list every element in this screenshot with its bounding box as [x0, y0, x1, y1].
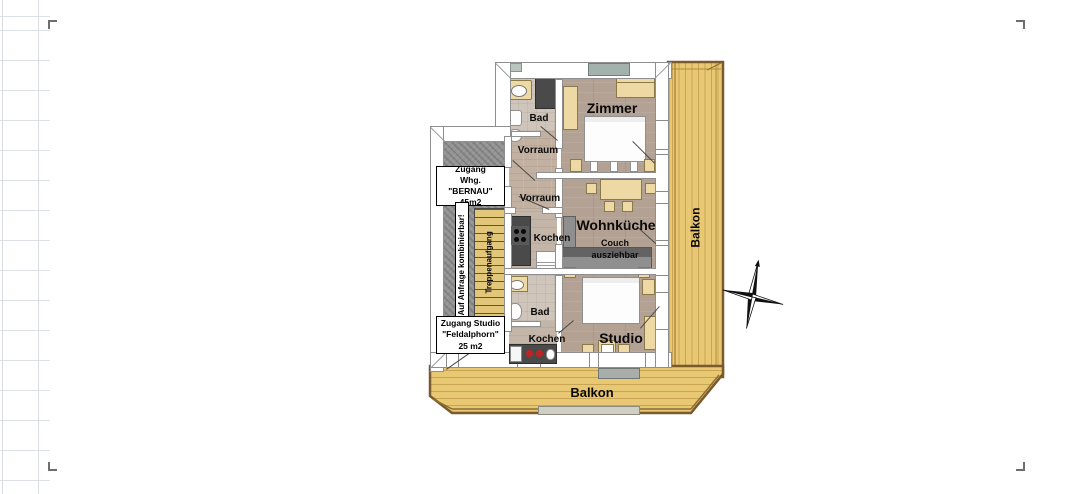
label-studio: Studio	[581, 331, 661, 346]
balcony-door-wohnkueche	[656, 245, 668, 276]
feldalphorn-line1: Zugang Studio	[437, 318, 504, 329]
floorplan-page: { "plan": { "labels": { "bad_top": "Bad"…	[0, 0, 1070, 494]
sink-kochen-bottom-icon	[546, 349, 555, 360]
label-bad-bottom: Bad	[520, 307, 560, 318]
sink-basin-bottom-icon	[510, 280, 524, 290]
fridge-bottom-icon	[510, 346, 522, 362]
label-treppenaufgang: Treppenaufgang	[486, 207, 495, 317]
bedpost-1	[590, 161, 598, 172]
label-box-bernau: Zugang Whg. "BERNAU" 45m2	[436, 166, 505, 206]
crop-mark-bottom-left	[48, 462, 57, 471]
bernau-line2: Whg. "BERNAU"	[437, 175, 504, 197]
label-bad-top: Bad	[519, 113, 559, 124]
label-zimmer: Zimmer	[572, 101, 652, 116]
sink-basin-icon	[511, 85, 527, 97]
feldalphorn-line2: "Feldalphorn"	[437, 329, 504, 340]
shower-top-bad	[535, 77, 557, 109]
chair-4	[622, 201, 633, 212]
label-box-kombinierbar: Auf Anfrage kombinierbar!	[455, 202, 469, 328]
wall-bad-top	[511, 131, 541, 137]
label-couch-line2: ausziehbar	[580, 251, 650, 261]
wall-left-upper	[495, 62, 511, 136]
label-kochen-top: Kochen	[522, 233, 582, 244]
bed-studio	[582, 277, 640, 324]
crop-mark-top-left	[48, 20, 57, 29]
wall-zimmer-wohnkueche	[536, 172, 668, 179]
nightstand-studio	[642, 279, 655, 295]
bed-zimmer	[584, 116, 646, 162]
crop-mark-bottom-right	[1016, 462, 1025, 471]
bernau-line1: Zugang	[437, 164, 504, 175]
label-vorraum-mid: Vorraum	[510, 193, 570, 204]
bedpost-2	[610, 161, 618, 172]
bedpost-3	[630, 161, 638, 172]
kombinierbar-text: Auf Anfrage kombinierbar!	[457, 203, 467, 327]
wall-bad-studio	[555, 275, 563, 332]
burner-red-2	[536, 350, 543, 357]
nightstand-left	[570, 159, 582, 172]
chair-1	[586, 183, 597, 194]
balcony-planter	[598, 368, 640, 379]
feldalphorn-line3: 25 m2	[437, 341, 504, 352]
window-top	[588, 63, 630, 76]
label-wohnkueche: Wohnküche	[566, 218, 666, 233]
window-bottom-3	[598, 353, 646, 367]
label-balkon-bottom: Balkon	[558, 386, 626, 400]
label-box-feldalphorn: Zugang Studio "Feldalphorn" 25 m2	[436, 316, 505, 354]
chair-3	[604, 201, 615, 212]
crop-mark-top-right	[1016, 20, 1025, 29]
label-couch-line1: Couch	[585, 239, 645, 249]
balcony-door-zimmer	[656, 154, 668, 192]
wall-bad-kochen-bottom	[511, 321, 541, 327]
wall-flat-divider	[504, 268, 668, 275]
label-vorraum-top: Vorraum	[508, 145, 568, 156]
graph-paper-strip	[0, 0, 50, 494]
compass-icon	[718, 258, 786, 336]
vent-top	[510, 63, 522, 72]
label-balkon-right: Balkon	[689, 188, 702, 268]
window-zimmer	[656, 120, 668, 150]
burner-red-1	[526, 350, 533, 357]
label-kochen-bottom: Kochen	[517, 334, 577, 345]
wall-vorraum-kochen-1	[504, 207, 516, 214]
dining-table	[600, 179, 642, 200]
balcony-door-studio	[656, 292, 668, 330]
balcony-step	[538, 406, 640, 415]
